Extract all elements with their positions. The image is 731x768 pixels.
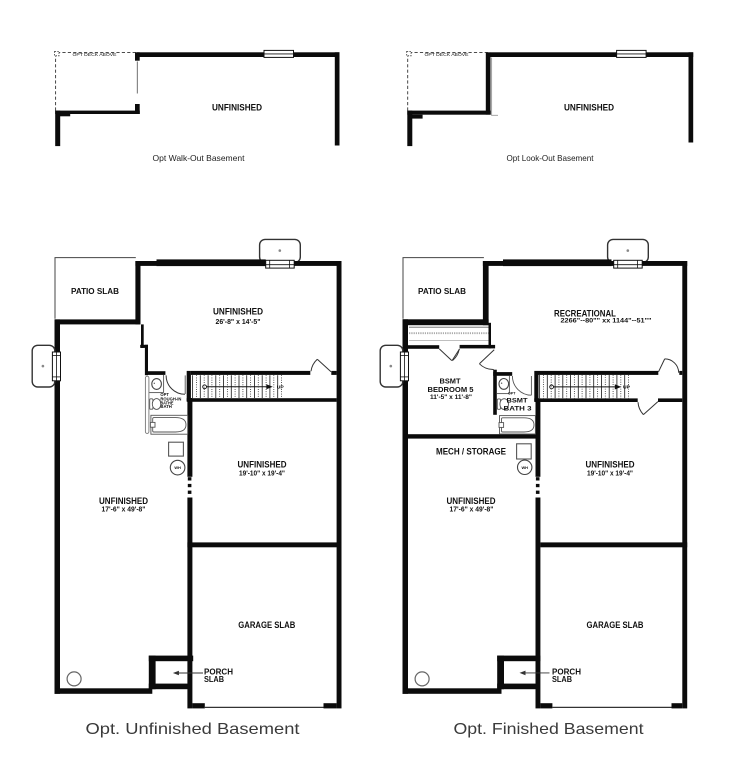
svg-text:2266"--80"" xx 1144"--51"": 2266"--80"" xx 1144"--51"" xyxy=(561,318,652,325)
svg-text:GARAGE SLAB: GARAGE SLAB xyxy=(238,620,295,630)
svg-text:19'-10" x 19'-4": 19'-10" x 19'-4" xyxy=(587,471,633,478)
svg-text:BATH 3: BATH 3 xyxy=(504,406,533,413)
svg-text:MECH / STORAGE: MECH / STORAGE xyxy=(436,447,506,457)
svg-text:26'-8" x 14'-5": 26'-8" x 14'-5" xyxy=(216,319,261,326)
svg-text:BEDROOM 5: BEDROOM 5 xyxy=(428,385,474,394)
svg-text:19'-10" x 19'-4": 19'-10" x 19'-4" xyxy=(239,471,285,478)
svg-text:WH: WH xyxy=(174,465,181,470)
svg-text:11'-5" x 11'-8": 11'-5" x 11'-8" xyxy=(430,394,472,401)
svg-text:UNFINISHED: UNFINISHED xyxy=(99,496,148,507)
svg-text:OPT DECK ABOVE: OPT DECK ABOVE xyxy=(425,52,469,57)
svg-text:Opt Walk-Out Basement: Opt Walk-Out Basement xyxy=(153,153,246,163)
svg-text:BSMT: BSMT xyxy=(507,398,528,405)
svg-text:SLAB: SLAB xyxy=(204,674,224,684)
svg-text:OPT DECK ABOVE: OPT DECK ABOVE xyxy=(73,52,117,57)
svg-text:Opt. Finished Basement: Opt. Finished Basement xyxy=(454,721,645,738)
svg-text:UNFINISHED: UNFINISHED xyxy=(238,460,287,470)
svg-text:17'-6" x 49'-8": 17'-6" x 49'-8" xyxy=(450,507,494,514)
svg-text:UNFINISHED: UNFINISHED xyxy=(586,460,635,470)
svg-text:UNFINISHED: UNFINISHED xyxy=(212,102,262,112)
svg-text:BATH: BATH xyxy=(160,404,172,409)
svg-text:UNFINISHED: UNFINISHED xyxy=(213,306,263,316)
svg-text:PATIO SLAB: PATIO SLAB xyxy=(71,287,119,296)
svg-text:UP: UP xyxy=(277,385,284,390)
svg-text:PATIO SLAB: PATIO SLAB xyxy=(418,287,466,296)
svg-text:UNFINISHED: UNFINISHED xyxy=(447,496,496,507)
svg-text:WH: WH xyxy=(521,465,528,470)
svg-text:17'-6" x 49'-8": 17'-6" x 49'-8" xyxy=(102,507,146,514)
svg-text:UP: UP xyxy=(623,384,630,389)
svg-text:Opt. Unfinished Basement: Opt. Unfinished Basement xyxy=(86,721,301,738)
svg-text:UNFINISHED: UNFINISHED xyxy=(564,102,614,112)
svg-text:SLAB: SLAB xyxy=(552,674,572,684)
svg-text:GARAGE SLAB: GARAGE SLAB xyxy=(587,620,644,630)
svg-text:OPT: OPT xyxy=(508,392,516,396)
svg-text:Opt Look-Out Basement: Opt Look-Out Basement xyxy=(507,153,595,163)
